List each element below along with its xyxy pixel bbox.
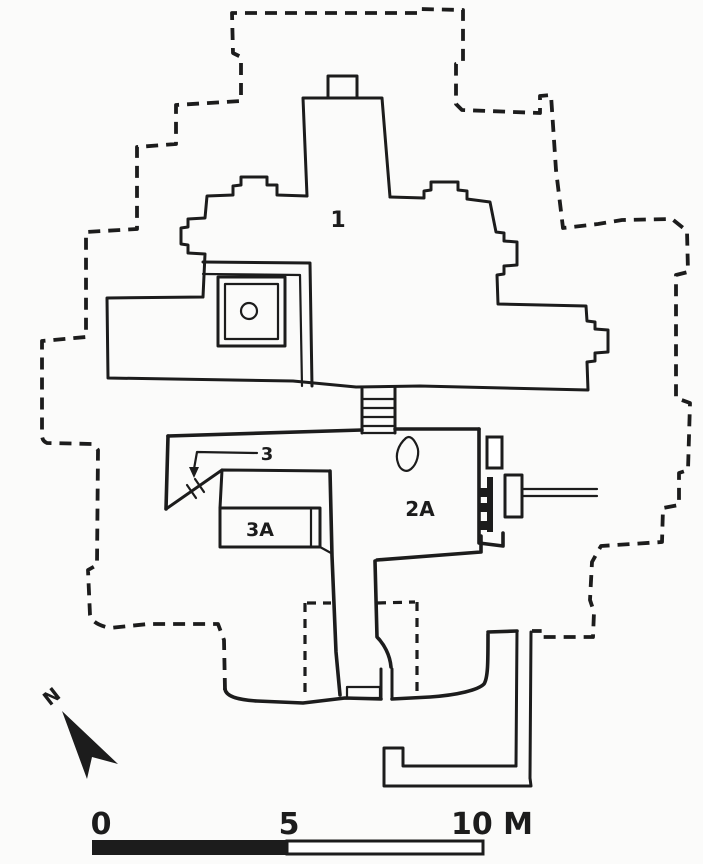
room-3a bbox=[220, 508, 331, 553]
courtyard-top-walls bbox=[168, 429, 479, 436]
site-plan-drawing: 1 2A 3 3A N 0 5 10 M bbox=[0, 0, 703, 864]
stairway bbox=[362, 388, 395, 433]
cell-outer-wall bbox=[218, 277, 285, 346]
door-jamb-box bbox=[487, 437, 502, 468]
courtyard-west-wall bbox=[166, 436, 168, 509]
causeway-lines bbox=[522, 489, 597, 496]
drain-channel bbox=[516, 631, 531, 778]
tower-finial bbox=[328, 76, 357, 98]
label-room-2a: 2A bbox=[405, 497, 435, 521]
room-2a-south-wall bbox=[377, 536, 481, 560]
inner-foundation-dashed bbox=[305, 602, 417, 694]
room-3-walls bbox=[220, 470, 330, 508]
threshold-block bbox=[347, 687, 380, 698]
enclosure-boundary-dashed bbox=[42, 9, 690, 690]
scale-bar-white-segment bbox=[287, 841, 483, 854]
east-entrance-complex bbox=[479, 429, 597, 546]
lower-courtyard bbox=[166, 429, 597, 786]
pier-tooth-2 bbox=[480, 503, 487, 512]
toothed-pier bbox=[487, 477, 493, 532]
upper-terrace bbox=[107, 76, 608, 433]
shrine-cell bbox=[218, 277, 285, 346]
central-tower bbox=[303, 98, 390, 197]
scale-tick-0: 0 bbox=[91, 807, 112, 842]
label-door-3: 3 bbox=[261, 444, 274, 465]
passage-west-wall bbox=[330, 471, 340, 695]
room-3a-wall-connector bbox=[320, 547, 331, 553]
pedestal-circle bbox=[241, 303, 257, 319]
drain-hook bbox=[384, 748, 531, 786]
north-indicator: N bbox=[39, 683, 118, 779]
courtyard-south-wall bbox=[225, 631, 517, 703]
scale-tick-5: 5 bbox=[279, 807, 300, 842]
leader-arrowhead bbox=[189, 467, 199, 478]
north-arrow-icon bbox=[62, 711, 118, 779]
outer-enclosure bbox=[42, 9, 690, 690]
scale-tick-10m: 10 M bbox=[451, 807, 533, 842]
scale-bar: 0 5 10 M bbox=[91, 807, 533, 855]
terrace-outline bbox=[107, 177, 608, 390]
pot-mark bbox=[397, 437, 418, 471]
pier-tooth-1 bbox=[480, 488, 487, 497]
cell-inner-wall bbox=[225, 284, 278, 339]
foundation-dashed-lines bbox=[305, 602, 417, 694]
passage-east-wall bbox=[375, 561, 391, 667]
stair-treads bbox=[362, 399, 395, 433]
plan-sheet: 1 2A 3 3A N 0 5 10 M bbox=[0, 0, 703, 864]
north-label: N bbox=[39, 683, 65, 710]
porch-block bbox=[505, 475, 522, 517]
passage-end-block bbox=[381, 669, 392, 699]
room-labels: 1 2A 3 3A bbox=[246, 208, 435, 541]
door-leader-line bbox=[194, 452, 257, 469]
pier-tooth-3 bbox=[480, 521, 487, 530]
label-room-3a: 3A bbox=[246, 519, 274, 541]
label-main-shrine: 1 bbox=[330, 208, 345, 233]
scale-bar-black-segment bbox=[92, 840, 287, 855]
